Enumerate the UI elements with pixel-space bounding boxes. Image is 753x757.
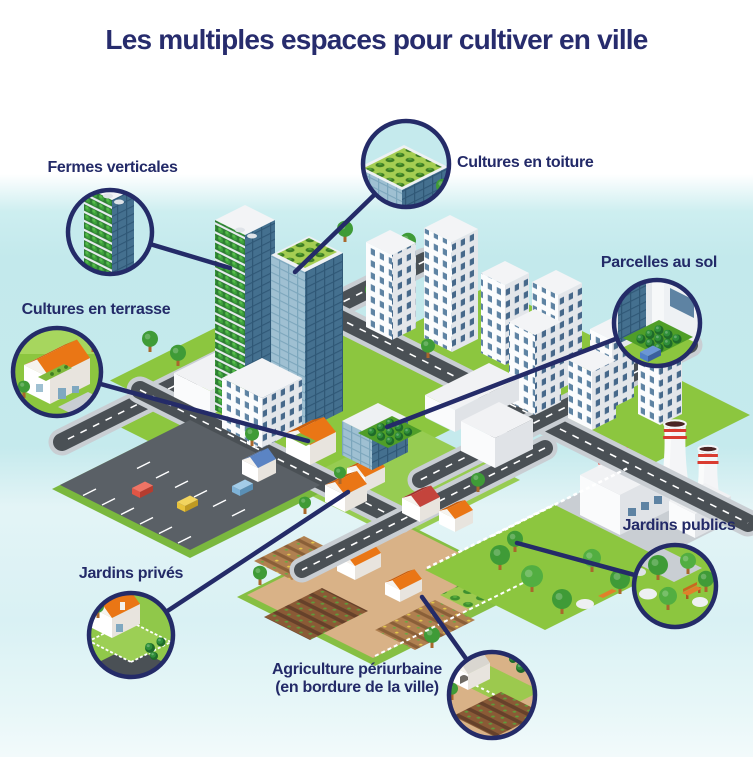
label-cultures-en-toiture: Cultures en toiture: [457, 154, 667, 172]
label-agriculture-periurbaine: Agriculture périurbaine(en bordure de la…: [235, 661, 479, 697]
label-fermes-verticales: Fermes verticales: [10, 159, 215, 177]
label-parcelles-au-sol: Parcelles au sol: [565, 254, 753, 272]
page-title: Les multiples espaces pour cultiver en v…: [0, 24, 753, 56]
callout-scene-cultures-en-terrasse: [9, 324, 110, 424]
city-illustration: MARKET: [0, 0, 753, 757]
label-jardins-publics: Jardins publics: [595, 517, 753, 535]
infographic-urban-farming: Les multiples espaces pour cultiver en v…: [0, 0, 753, 757]
label-cultures-en-terrasse: Cultures en terrasse: [0, 301, 192, 319]
callout-scene-fermes-verticales: [60, 175, 164, 298]
label-jardins-prives: Jardins privés: [30, 565, 232, 583]
